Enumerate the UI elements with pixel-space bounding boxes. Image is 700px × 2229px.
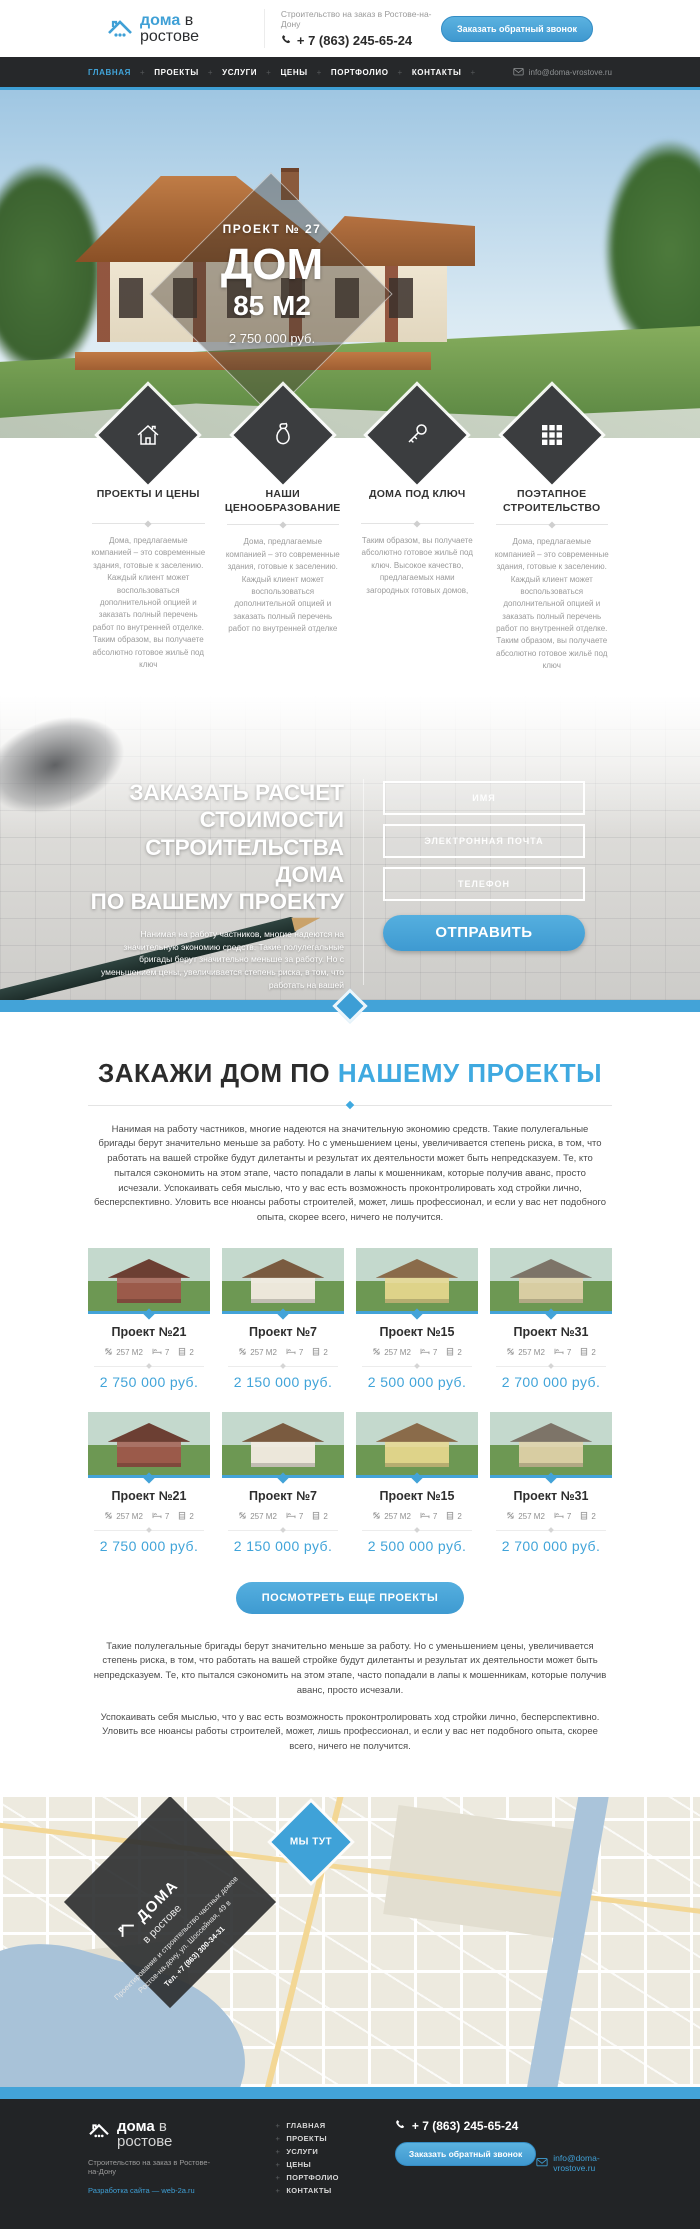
project-card[interactable]: Проект №15 257 М2 7 2 2 500 000 руб. bbox=[356, 1412, 478, 1554]
hero-project-label: ПРОЕКТ № 27 bbox=[150, 222, 394, 236]
project-price: 2 150 000 руб. bbox=[222, 1538, 344, 1554]
hero-copy: ПРОЕКТ № 27 ДОМ 85 М2 2 750 000 руб. bbox=[150, 222, 394, 346]
spec-area: 257 М2 bbox=[384, 1512, 411, 1521]
card-divider bbox=[496, 1366, 606, 1367]
project-title: Проект №31 bbox=[490, 1489, 612, 1503]
calc-heading-block: ЗАКАЗАТЬ РАСЧЕТ СТОИМОСТИ СТРОИТЕЛЬСТВА … bbox=[88, 779, 344, 992]
project-photo bbox=[490, 1412, 612, 1478]
thumb-marker-diamond bbox=[143, 1472, 154, 1483]
spec-beds: 7 bbox=[433, 1512, 437, 1521]
floors-icon bbox=[178, 1511, 186, 1522]
header-tagline: Строительство на заказ в Ростове-на-Дону bbox=[281, 9, 441, 29]
footer-email-block: info@doma-vrostove.ru bbox=[536, 2119, 612, 2197]
project-title: Проект №15 bbox=[356, 1489, 478, 1503]
footer-phone-number: + 7 (863) 245-65-24 bbox=[412, 2119, 518, 2133]
project-specs: 257 М2 7 2 bbox=[356, 1347, 478, 1358]
nav-item-kontakty[interactable]: КОНТАКТЫ bbox=[412, 68, 485, 77]
phone-input[interactable] bbox=[383, 867, 585, 901]
project-photo bbox=[88, 1412, 210, 1478]
card-divider bbox=[94, 1530, 204, 1531]
project-photo bbox=[88, 1248, 210, 1314]
projects-heading-dark: ЗАКАЖИ ДОМ ПО bbox=[98, 1058, 330, 1088]
floors-icon bbox=[580, 1347, 588, 1358]
nav-email-text: info@doma-vrostove.ru bbox=[529, 68, 612, 77]
floors-icon bbox=[446, 1347, 454, 1358]
feature-title: ПРОЕКТЫ И ЦЕНЫ bbox=[88, 487, 209, 514]
projects-heading: ЗАКАЖИ ДОМ ПО НАШЕМУ ПРОЕКТЫ bbox=[88, 1058, 612, 1089]
feature-title: ПОЭТАПНОЕ СТРОИТЕЛЬСТВО bbox=[492, 487, 613, 515]
area-icon bbox=[372, 1347, 381, 1358]
feature-turnkey: ДОМА ПОД КЛЮЧ Таким образом, вы получает… bbox=[357, 438, 478, 673]
spec-area: 257 М2 bbox=[116, 1348, 143, 1357]
beds-icon bbox=[152, 1511, 162, 1521]
footer-menu-glavnaya[interactable]: ГЛАВНАЯ bbox=[276, 2119, 339, 2132]
spec-floors: 2 bbox=[189, 1512, 193, 1521]
project-specs: 257 М2 7 2 bbox=[490, 1347, 612, 1358]
project-card[interactable]: Проект №7 257 М2 7 2 2 150 000 руб. bbox=[222, 1412, 344, 1554]
project-title: Проект №21 bbox=[88, 1489, 210, 1503]
project-price: 2 700 000 руб. bbox=[490, 1374, 612, 1390]
nav-item-tseny[interactable]: ЦЕНЫ bbox=[280, 68, 330, 77]
spec-beds: 7 bbox=[165, 1348, 169, 1357]
logo-accent: дома bbox=[140, 12, 180, 29]
footer-callback-button[interactable]: Заказать обратный звонок bbox=[395, 2142, 536, 2166]
project-title: Проект №31 bbox=[490, 1325, 612, 1339]
spec-beds: 7 bbox=[165, 1512, 169, 1521]
footer-menu: ГЛАВНАЯ ПРОЕКТЫ УСЛУГИ ЦЕНЫ ПОРТФОЛИО КО… bbox=[276, 2119, 339, 2197]
beds-icon bbox=[420, 1347, 430, 1357]
footer-credit-link[interactable]: Разработка сайта — web-2a.ru bbox=[88, 2186, 212, 2195]
calc-form: ОТПРАВИТЬ bbox=[383, 779, 585, 992]
project-title: Проект №15 bbox=[356, 1325, 478, 1339]
spec-beds: 7 bbox=[299, 1512, 303, 1521]
projects-outro-1: Такие полулегальные бригады берут значит… bbox=[88, 1640, 612, 1699]
hero-price: 2 750 000 руб. bbox=[150, 331, 394, 346]
project-card[interactable]: Проект №31 257 М2 7 2 2 700 000 руб. bbox=[490, 1248, 612, 1390]
spec-floors: 2 bbox=[323, 1512, 327, 1521]
spec-area: 257 М2 bbox=[518, 1348, 545, 1357]
project-card[interactable]: Проект №21 257 М2 7 2 2 750 000 руб. bbox=[88, 1248, 210, 1390]
hero-banner: ПРОЕКТ № 27 ДОМ 85 М2 2 750 000 руб. bbox=[0, 90, 700, 438]
nav-item-portfolio[interactable]: ПОРТФОЛИО bbox=[331, 68, 412, 77]
logo-house-icon bbox=[107, 18, 133, 40]
feature-divider bbox=[361, 523, 474, 524]
callback-button[interactable]: Заказать обратный звонок bbox=[441, 16, 593, 42]
card-divider bbox=[94, 1366, 204, 1367]
spec-area: 257 М2 bbox=[384, 1348, 411, 1357]
spec-floors: 2 bbox=[457, 1348, 461, 1357]
calc-note: Нанимая на работу частников, многие наде… bbox=[88, 928, 344, 992]
feature-phased-construction: ПОЭТАПНОЕ СТРОИТЕЛЬСТВО Дома, предлагаем… bbox=[492, 438, 613, 673]
floors-icon bbox=[312, 1347, 320, 1358]
project-specs: 257 М2 7 2 bbox=[222, 1347, 344, 1358]
spec-area: 257 М2 bbox=[250, 1512, 277, 1521]
project-photo bbox=[222, 1248, 344, 1314]
site-header: дома в ростове Строительство на заказ в … bbox=[0, 0, 700, 57]
area-icon bbox=[372, 1511, 381, 1522]
calc-separator bbox=[363, 779, 364, 985]
header-phone-number: + 7 (863) 245-65-24 bbox=[297, 33, 412, 48]
calc-heading-line: СТОИМОСТИ bbox=[88, 806, 344, 833]
thumb-marker-diamond bbox=[277, 1308, 288, 1319]
card-divider bbox=[228, 1530, 338, 1531]
footer-phone: + 7 (863) 245-65-24 bbox=[395, 2119, 536, 2133]
beds-icon bbox=[554, 1347, 564, 1357]
footer: дома в ростове Строительство на заказ в … bbox=[0, 2099, 700, 2229]
spec-beds: 7 bbox=[567, 1512, 571, 1521]
footer-logo[interactable]: дома в ростове bbox=[88, 2119, 212, 2149]
feature-divider bbox=[496, 524, 609, 525]
card-divider bbox=[362, 1530, 472, 1531]
beds-icon bbox=[554, 1511, 564, 1521]
card-divider bbox=[228, 1366, 338, 1367]
feature-title: ДОМА ПОД КЛЮЧ bbox=[357, 487, 478, 514]
project-specs: 257 М2 7 2 bbox=[490, 1511, 612, 1522]
project-specs: 257 М2 7 2 bbox=[222, 1511, 344, 1522]
project-photo bbox=[222, 1412, 344, 1478]
nav-email[interactable]: info@doma-vrostove.ru bbox=[513, 67, 612, 78]
thumb-marker-diamond bbox=[277, 1472, 288, 1483]
floors-icon bbox=[178, 1347, 186, 1358]
calc-heading-line: ПО ВАШЕМУ ПРОЕКТУ bbox=[88, 888, 344, 915]
calc-heading: ЗАКАЗАТЬ РАСЧЕТ СТОИМОСТИ СТРОИТЕЛЬСТВА … bbox=[88, 779, 344, 916]
calc-section: ЗАКАЗАТЬ РАСЧЕТ СТОИМОСТИ СТРОИТЕЛЬСТВА … bbox=[0, 695, 700, 1000]
project-card[interactable]: Проект №21 257 М2 7 2 2 750 000 руб. bbox=[88, 1412, 210, 1554]
spec-floors: 2 bbox=[591, 1348, 595, 1357]
feature-text: Дома, предлагаемые компанией – это совре… bbox=[88, 533, 209, 671]
spec-beds: 7 bbox=[567, 1348, 571, 1357]
project-specs: 257 М2 7 2 bbox=[356, 1511, 478, 1522]
project-price: 2 750 000 руб. bbox=[88, 1374, 210, 1390]
envelope-icon bbox=[536, 2157, 548, 2169]
footer-email[interactable]: info@doma-vrostove.ru bbox=[536, 2153, 612, 2173]
project-specs: 257 М2 7 2 bbox=[88, 1347, 210, 1358]
footer-menu-kontakty[interactable]: КОНТАКТЫ bbox=[276, 2184, 339, 2197]
project-photo bbox=[356, 1248, 478, 1314]
spec-area: 257 М2 bbox=[518, 1512, 545, 1521]
floors-icon bbox=[580, 1511, 588, 1522]
spec-area: 257 М2 bbox=[116, 1512, 143, 1521]
project-price: 2 500 000 руб. bbox=[356, 1374, 478, 1390]
feature-divider bbox=[227, 524, 340, 525]
spec-floors: 2 bbox=[323, 1348, 327, 1357]
footer-email-text: info@doma-vrostove.ru bbox=[553, 2153, 612, 2173]
area-icon bbox=[104, 1347, 113, 1358]
thumb-marker-diamond bbox=[411, 1308, 422, 1319]
spec-floors: 2 bbox=[457, 1512, 461, 1521]
card-divider bbox=[362, 1366, 472, 1367]
thumb-marker-diamond bbox=[545, 1308, 556, 1319]
email-input[interactable] bbox=[383, 824, 585, 858]
project-price: 2 150 000 руб. bbox=[222, 1374, 344, 1390]
hero-area: 85 М2 bbox=[150, 290, 394, 322]
area-icon bbox=[238, 1347, 247, 1358]
feature-pricing: НАШИ ЦЕНООБРАЗОВАНИЕ Дома, предлагаемые … bbox=[223, 438, 344, 673]
beds-icon bbox=[286, 1347, 296, 1357]
heading-divider bbox=[88, 1105, 612, 1106]
more-projects-button[interactable]: ПОСМОТРЕТЬ ЕЩЕ ПРОЕКТЫ bbox=[236, 1582, 464, 1614]
map-marker-label: МЫ ТУТ bbox=[290, 1836, 332, 1847]
main-nav: ГЛАВНАЯ ПРОЕКТЫ УСЛУГИ ЦЕНЫ ПОРТФОЛИО КО… bbox=[0, 57, 700, 90]
footer-menu-tseny[interactable]: ЦЕНЫ bbox=[276, 2158, 339, 2171]
header-phone: + 7 (863) 245-65-24 bbox=[281, 33, 441, 48]
area-icon bbox=[506, 1347, 515, 1358]
blue-divider-bar bbox=[0, 2087, 700, 2099]
project-title: Проект №21 bbox=[88, 1325, 210, 1339]
footer-menu-proekty[interactable]: ПРОЕКТЫ bbox=[276, 2132, 339, 2145]
feature-text: Дома, предлагаемые компанией – это совре… bbox=[492, 534, 613, 672]
area-icon bbox=[506, 1511, 515, 1522]
project-card[interactable]: Проект №7 257 М2 7 2 2 150 000 руб. bbox=[222, 1248, 344, 1390]
projects-section: ЗАКАЖИ ДОМ ПО НАШЕМУ ПРОЕКТЫ Нанимая на … bbox=[0, 1012, 700, 1797]
envelope-icon bbox=[513, 67, 524, 78]
beds-icon bbox=[152, 1347, 162, 1357]
project-price: 2 750 000 руб. bbox=[88, 1538, 210, 1554]
project-cards-grid: Проект №21 257 М2 7 2 2 750 000 руб. Про… bbox=[88, 1248, 612, 1554]
area-icon bbox=[238, 1511, 247, 1522]
beds-icon bbox=[420, 1511, 430, 1521]
footer-menu-uslugi[interactable]: УСЛУГИ bbox=[276, 2145, 339, 2158]
feature-divider bbox=[92, 523, 205, 524]
feature-text: Дома, предлагаемые компанией – это совре… bbox=[223, 534, 344, 635]
beds-icon bbox=[286, 1511, 296, 1521]
features-section: ПРОЕКТЫ И ЦЕНЫ Дома, предлагаемые компан… bbox=[0, 438, 700, 695]
feature-text: Таким образом, вы получаете абсолютно го… bbox=[357, 533, 478, 597]
submit-button[interactable]: ОТПРАВИТЬ bbox=[383, 915, 585, 951]
project-title: Проект №7 bbox=[222, 1325, 344, 1339]
thumb-marker-diamond bbox=[143, 1308, 154, 1319]
thumb-marker-diamond bbox=[411, 1472, 422, 1483]
map-section[interactable]: ДОМА в ростове Проектирование и строител… bbox=[0, 1797, 700, 2087]
nav-item-uslugi[interactable]: УСЛУГИ bbox=[222, 68, 280, 77]
card-divider bbox=[496, 1530, 606, 1531]
project-price: 2 500 000 руб. bbox=[356, 1538, 478, 1554]
area-icon bbox=[104, 1511, 113, 1522]
header-contact-block: Строительство на заказ в Ростове-на-Дону… bbox=[264, 9, 441, 48]
project-card[interactable]: Проект №31 257 М2 7 2 2 700 000 руб. bbox=[490, 1412, 612, 1554]
project-price: 2 700 000 руб. bbox=[490, 1538, 612, 1554]
thumb-marker-diamond bbox=[545, 1472, 556, 1483]
nav-item-proekty[interactable]: ПРОЕКТЫ bbox=[154, 68, 222, 77]
phone-icon bbox=[281, 33, 292, 48]
footer-menu-portfolio[interactable]: ПОРТФОЛИО bbox=[276, 2171, 339, 2184]
logo-house-icon bbox=[88, 2122, 110, 2145]
project-card[interactable]: Проект №15 257 М2 7 2 2 500 000 руб. bbox=[356, 1248, 478, 1390]
feature-title: НАШИ ЦЕНООБРАЗОВАНИЕ bbox=[223, 487, 344, 515]
footer-tagline: Строительство на заказ в Ростове-на-Дону bbox=[88, 2158, 212, 2176]
project-specs: 257 М2 7 2 bbox=[88, 1511, 210, 1522]
footer-brand-block: дома в ростове Строительство на заказ в … bbox=[88, 2119, 212, 2197]
spec-area: 257 М2 bbox=[250, 1348, 277, 1357]
spec-floors: 2 bbox=[189, 1348, 193, 1357]
feature-projects-prices: ПРОЕКТЫ И ЦЕНЫ Дома, предлагаемые компан… bbox=[88, 438, 209, 673]
floors-icon bbox=[312, 1511, 320, 1522]
nav-item-glavnaya[interactable]: ГЛАВНАЯ bbox=[88, 68, 154, 77]
blue-divider-bar bbox=[0, 1000, 700, 1012]
name-input[interactable] bbox=[383, 781, 585, 815]
hero-title: ДОМ bbox=[150, 242, 394, 288]
footer-contact-block: + 7 (863) 245-65-24 Заказать обратный зв… bbox=[395, 2119, 536, 2197]
project-photo bbox=[490, 1248, 612, 1314]
phone-icon bbox=[395, 2119, 406, 2133]
spec-beds: 7 bbox=[433, 1348, 437, 1357]
spec-beds: 7 bbox=[299, 1348, 303, 1357]
logo[interactable]: дома в ростове bbox=[107, 13, 248, 45]
projects-outro-2: Успокаивать себя мыслью, что у вас есть … bbox=[88, 1711, 612, 1797]
projects-heading-accent: НАШЕМУ ПРОЕКТЫ bbox=[338, 1058, 602, 1088]
project-photo bbox=[356, 1412, 478, 1478]
calc-heading-line: СТРОИТЕЛЬСТВА ДОМА bbox=[88, 834, 344, 889]
project-title: Проект №7 bbox=[222, 1489, 344, 1503]
projects-intro: Нанимая на работу частников, многие наде… bbox=[93, 1123, 607, 1226]
spec-floors: 2 bbox=[591, 1512, 595, 1521]
floors-icon bbox=[446, 1511, 454, 1522]
calc-heading-line: ЗАКАЗАТЬ РАСЧЕТ bbox=[88, 779, 344, 806]
